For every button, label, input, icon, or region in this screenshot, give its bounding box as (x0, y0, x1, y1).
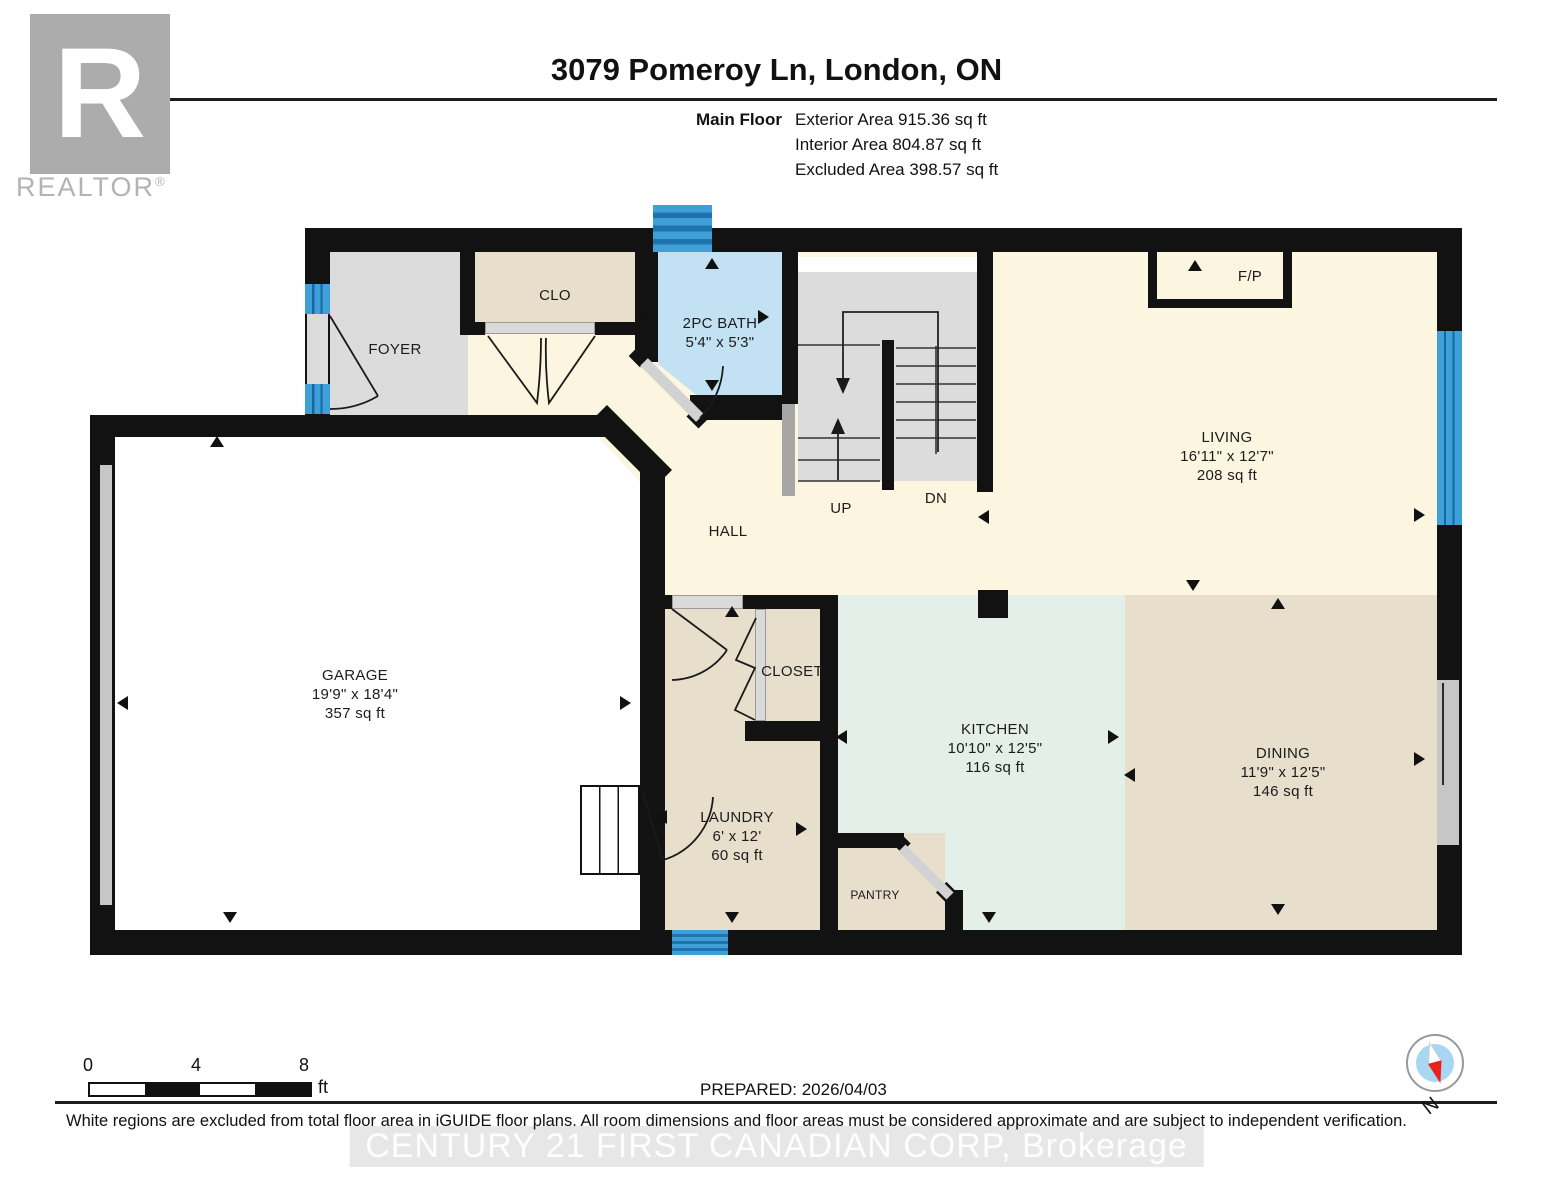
arrow-dining-down (1271, 904, 1285, 915)
prepared-date: PREPARED: 2026/04/03 (700, 1080, 887, 1100)
arrow-garage-right (620, 696, 631, 710)
wall-closet-bottom (745, 721, 838, 741)
foyer-floor (330, 252, 468, 416)
arrow-dining-up (1271, 598, 1285, 609)
clo-threshold (485, 322, 595, 334)
realtor-logo: R (30, 14, 170, 174)
room-label-closet: CLOSET (761, 662, 823, 681)
garage-door (100, 465, 112, 905)
room-label-bath: 2PC BATH5'4" x 5'3" (683, 314, 758, 352)
footer-divider-line (55, 1101, 1497, 1104)
arrow-laundry-down (725, 912, 739, 923)
stairs-down-label: DN (925, 489, 947, 508)
column-post (978, 590, 1008, 618)
laundry-closet-floor (665, 595, 838, 930)
floor-plan-page: { "header": { "title": "3079 Pomeroy Ln,… (0, 0, 1553, 1200)
wall-bottom (90, 930, 1462, 955)
living-window (1437, 331, 1462, 525)
interior-area-stat: Interior Area 804.87 sq ft (795, 135, 981, 155)
room-label-dining: DINING11'9" x 12'5"146 sq ft (1240, 744, 1325, 801)
arrow-living-down (1186, 580, 1200, 591)
scale-tick-4: 4 (191, 1055, 201, 1076)
excluded-area-stat: Excluded Area 398.57 sq ft (795, 160, 998, 180)
arrow-garage-down (223, 912, 237, 923)
compass-north-label: N (1418, 1093, 1444, 1120)
stair-railing (782, 404, 795, 496)
foyer-sidelight-window-top (305, 284, 330, 314)
room-label-foyer: FOYER (368, 340, 421, 359)
wall-clo-stub-left (460, 322, 485, 335)
arrow-laundry-up (725, 606, 739, 617)
arrow-dining-left (1124, 768, 1135, 782)
wall-stair-left (782, 252, 798, 404)
floor-label: Main Floor (696, 110, 782, 130)
arrow-laundry-right (796, 822, 807, 836)
arrow-living-right (1414, 508, 1425, 522)
scale-unit: ft (318, 1077, 328, 1098)
brokerage-watermark: CENTURY 21 FIRST CANADIAN CORP, Brokerag… (349, 1126, 1204, 1167)
arrow-bath-left (638, 310, 649, 324)
arrow-living-left (978, 510, 989, 524)
entry-door-window (653, 205, 712, 252)
arrow-bath-right (758, 310, 769, 324)
header-divider-line (55, 98, 1497, 101)
scale-tick-8: 8 (299, 1055, 309, 1076)
front-door-opening (307, 314, 328, 384)
disclaimer-text: White regions are excluded from total fl… (66, 1112, 1407, 1131)
arrow-kitchen-down (982, 912, 996, 923)
arrow-laundry-left (656, 810, 667, 824)
garage-steps (580, 785, 640, 875)
realtor-wordmark: REALTOR® (16, 172, 167, 203)
fireplace-niche (1148, 252, 1292, 308)
page-title: 3079 Pomeroy Ln, London, ON (551, 52, 1002, 88)
room-label-laundry: LAUNDRY6' x 12'60 sq ft (700, 808, 774, 865)
room-label-living: LIVING16'11" x 12'7"208 sq ft (1180, 428, 1274, 485)
dining-sliding-door (1437, 680, 1459, 845)
fireplace-label: F/P (1238, 267, 1262, 286)
floor-plan: FOYER CLO 2PC BATH5'4" x 5'3" LIVING16'1… (90, 228, 1462, 955)
arrow-garage-up (210, 436, 224, 447)
scale-bar-graphic (88, 1082, 312, 1097)
scale-tick-0: 0 (83, 1055, 93, 1076)
wall-stair-right (977, 252, 993, 492)
arrow-garage-left (117, 696, 128, 710)
stairs-up-label: UP (830, 499, 851, 518)
arrow-dining-right (1414, 752, 1425, 766)
arrow-kitchen-right (1108, 730, 1119, 744)
room-label-hall: HALL (709, 522, 748, 541)
foyer-sidelight-window-bottom (305, 384, 330, 414)
arrow-bath-up (705, 258, 719, 269)
room-label-pantry: PANTRY (850, 886, 899, 905)
arrow-bath-down (705, 380, 719, 391)
room-label-garage: GARAGE19'9" x 18'4"357 sq ft (312, 666, 398, 723)
wall-top (305, 228, 1462, 252)
room-label-kitchen: KITCHEN10'10" x 12'5"116 sq ft (948, 720, 1043, 777)
wall-garage-top (90, 415, 605, 437)
wall-laundry-right (820, 595, 838, 930)
arrow-fireplace-up (1188, 260, 1202, 271)
sliding-door-line (1442, 683, 1444, 785)
exterior-area-stat: Exterior Area 915.36 sq ft (795, 110, 987, 130)
compass-icon (1405, 1033, 1465, 1093)
room-label-clo: CLO (539, 286, 571, 305)
realtor-r-icon: R (54, 30, 146, 158)
wall-garage-right (640, 471, 665, 930)
wall-stair-divider (882, 340, 894, 490)
laundry-window (672, 930, 728, 955)
stair-landing (798, 257, 977, 272)
arrow-kitchen-left (836, 730, 847, 744)
